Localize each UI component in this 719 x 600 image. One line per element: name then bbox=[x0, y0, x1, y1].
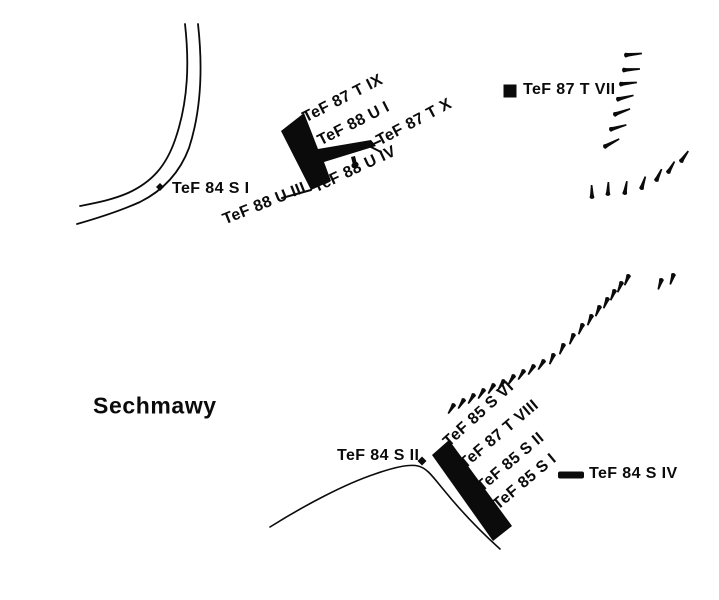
label-sechmawy: Sechmawy bbox=[93, 393, 217, 419]
label-tef88-u-iv: TeF 88 U IV bbox=[310, 143, 399, 197]
site-map-figure: TeF 87 T IXTeF 88 U ITeF 87 T XTeF 88 U … bbox=[0, 0, 719, 600]
label-tef87-t-vii: TeF 87 T VII bbox=[523, 81, 616, 99]
label-tef84-s-ii: TeF 84 S II bbox=[337, 447, 419, 465]
map-labels-layer: TeF 87 T IXTeF 88 U ITeF 87 T XTeF 88 U … bbox=[0, 0, 719, 600]
label-tef84-s-iv: TeF 84 S IV bbox=[589, 465, 678, 483]
label-tef84-s-i: TeF 84 S I bbox=[172, 180, 250, 198]
